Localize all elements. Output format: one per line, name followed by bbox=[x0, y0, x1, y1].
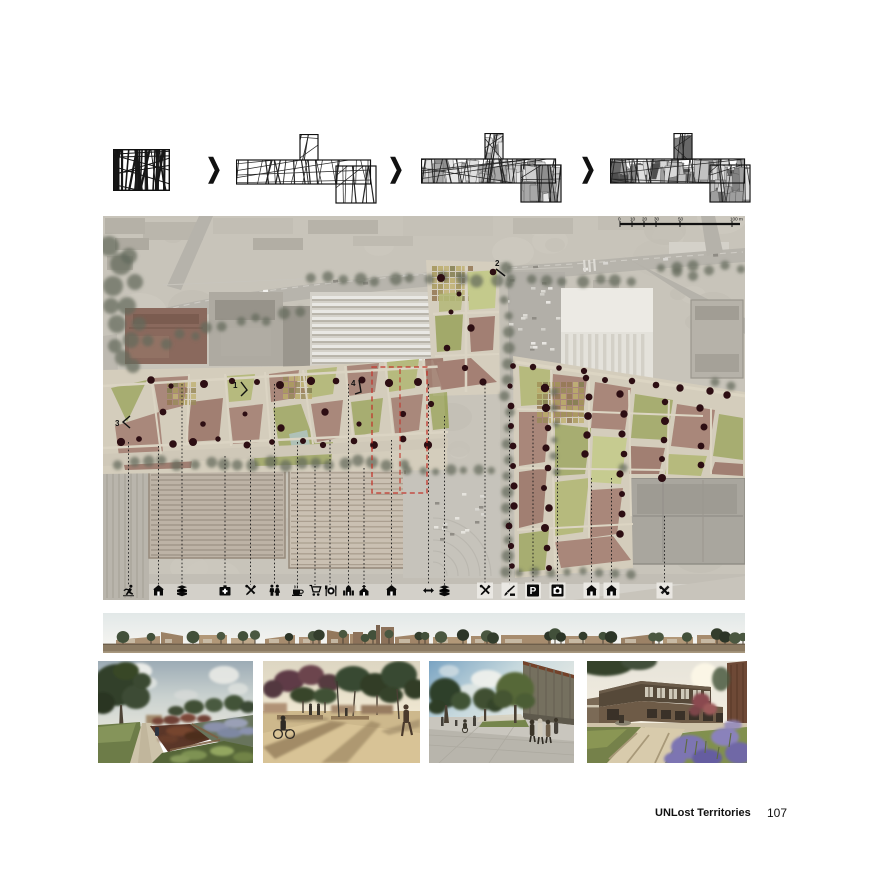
svg-text:2: 2 bbox=[495, 259, 500, 268]
svg-text:1: 1 bbox=[233, 381, 238, 390]
svg-text:P: P bbox=[530, 586, 537, 597]
svg-text:30: 30 bbox=[654, 216, 660, 221]
svg-text:10: 10 bbox=[630, 216, 636, 221]
svg-text:50: 50 bbox=[678, 216, 684, 221]
svg-text:4: 4 bbox=[351, 379, 356, 388]
svg-text:100 m: 100 m bbox=[730, 216, 743, 221]
svg-text:20: 20 bbox=[642, 216, 648, 221]
svg-text:3: 3 bbox=[115, 419, 120, 428]
svg-text:0: 0 bbox=[618, 216, 621, 221]
